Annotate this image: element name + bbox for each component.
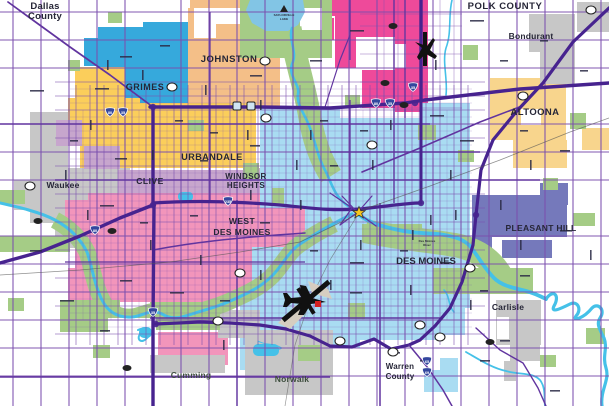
svg-text:HEIGHTS: HEIGHTS: [227, 181, 266, 190]
svg-text:URBANDALE: URBANDALE: [181, 152, 243, 162]
svg-text:Warren: Warren: [386, 362, 414, 371]
svg-text:35: 35: [411, 86, 415, 90]
svg-text:River: River: [423, 243, 431, 247]
svg-text:ALTOONA: ALTOONA: [511, 107, 560, 118]
svg-text:DES MOINES: DES MOINES: [213, 227, 270, 237]
svg-text:CLIVE: CLIVE: [136, 176, 164, 186]
svg-text:County: County: [28, 11, 62, 22]
svg-text:69: 69: [425, 371, 429, 375]
svg-text:JOHNSTON: JOHNSTON: [201, 54, 258, 65]
svg-text:DES MOINES: DES MOINES: [396, 256, 456, 267]
svg-text:WEST: WEST: [229, 216, 256, 226]
svg-text:35: 35: [121, 111, 125, 115]
svg-text:Cumming: Cumming: [171, 370, 212, 380]
svg-text:WINDSOR: WINDSOR: [225, 172, 266, 181]
svg-text:80: 80: [374, 102, 378, 106]
svg-text:235: 235: [225, 200, 231, 204]
svg-text:GRIMES: GRIMES: [126, 82, 165, 92]
svg-text:80: 80: [93, 229, 97, 233]
svg-text:LAKE: LAKE: [280, 17, 288, 21]
svg-text:35: 35: [388, 102, 392, 106]
svg-text:Carlisle: Carlisle: [492, 302, 524, 312]
svg-text:80: 80: [108, 111, 112, 115]
svg-text:County: County: [386, 372, 415, 381]
svg-text:POLK COUNTY: POLK COUNTY: [468, 1, 543, 12]
svg-text:PLEASANT HILL: PLEASANT HILL: [506, 223, 577, 233]
svg-text:Waukee: Waukee: [46, 180, 79, 190]
svg-text:Norwalk: Norwalk: [275, 374, 310, 384]
svg-text:Bondurant: Bondurant: [509, 31, 554, 41]
svg-text:65: 65: [425, 360, 429, 364]
svg-text:35: 35: [151, 311, 155, 315]
